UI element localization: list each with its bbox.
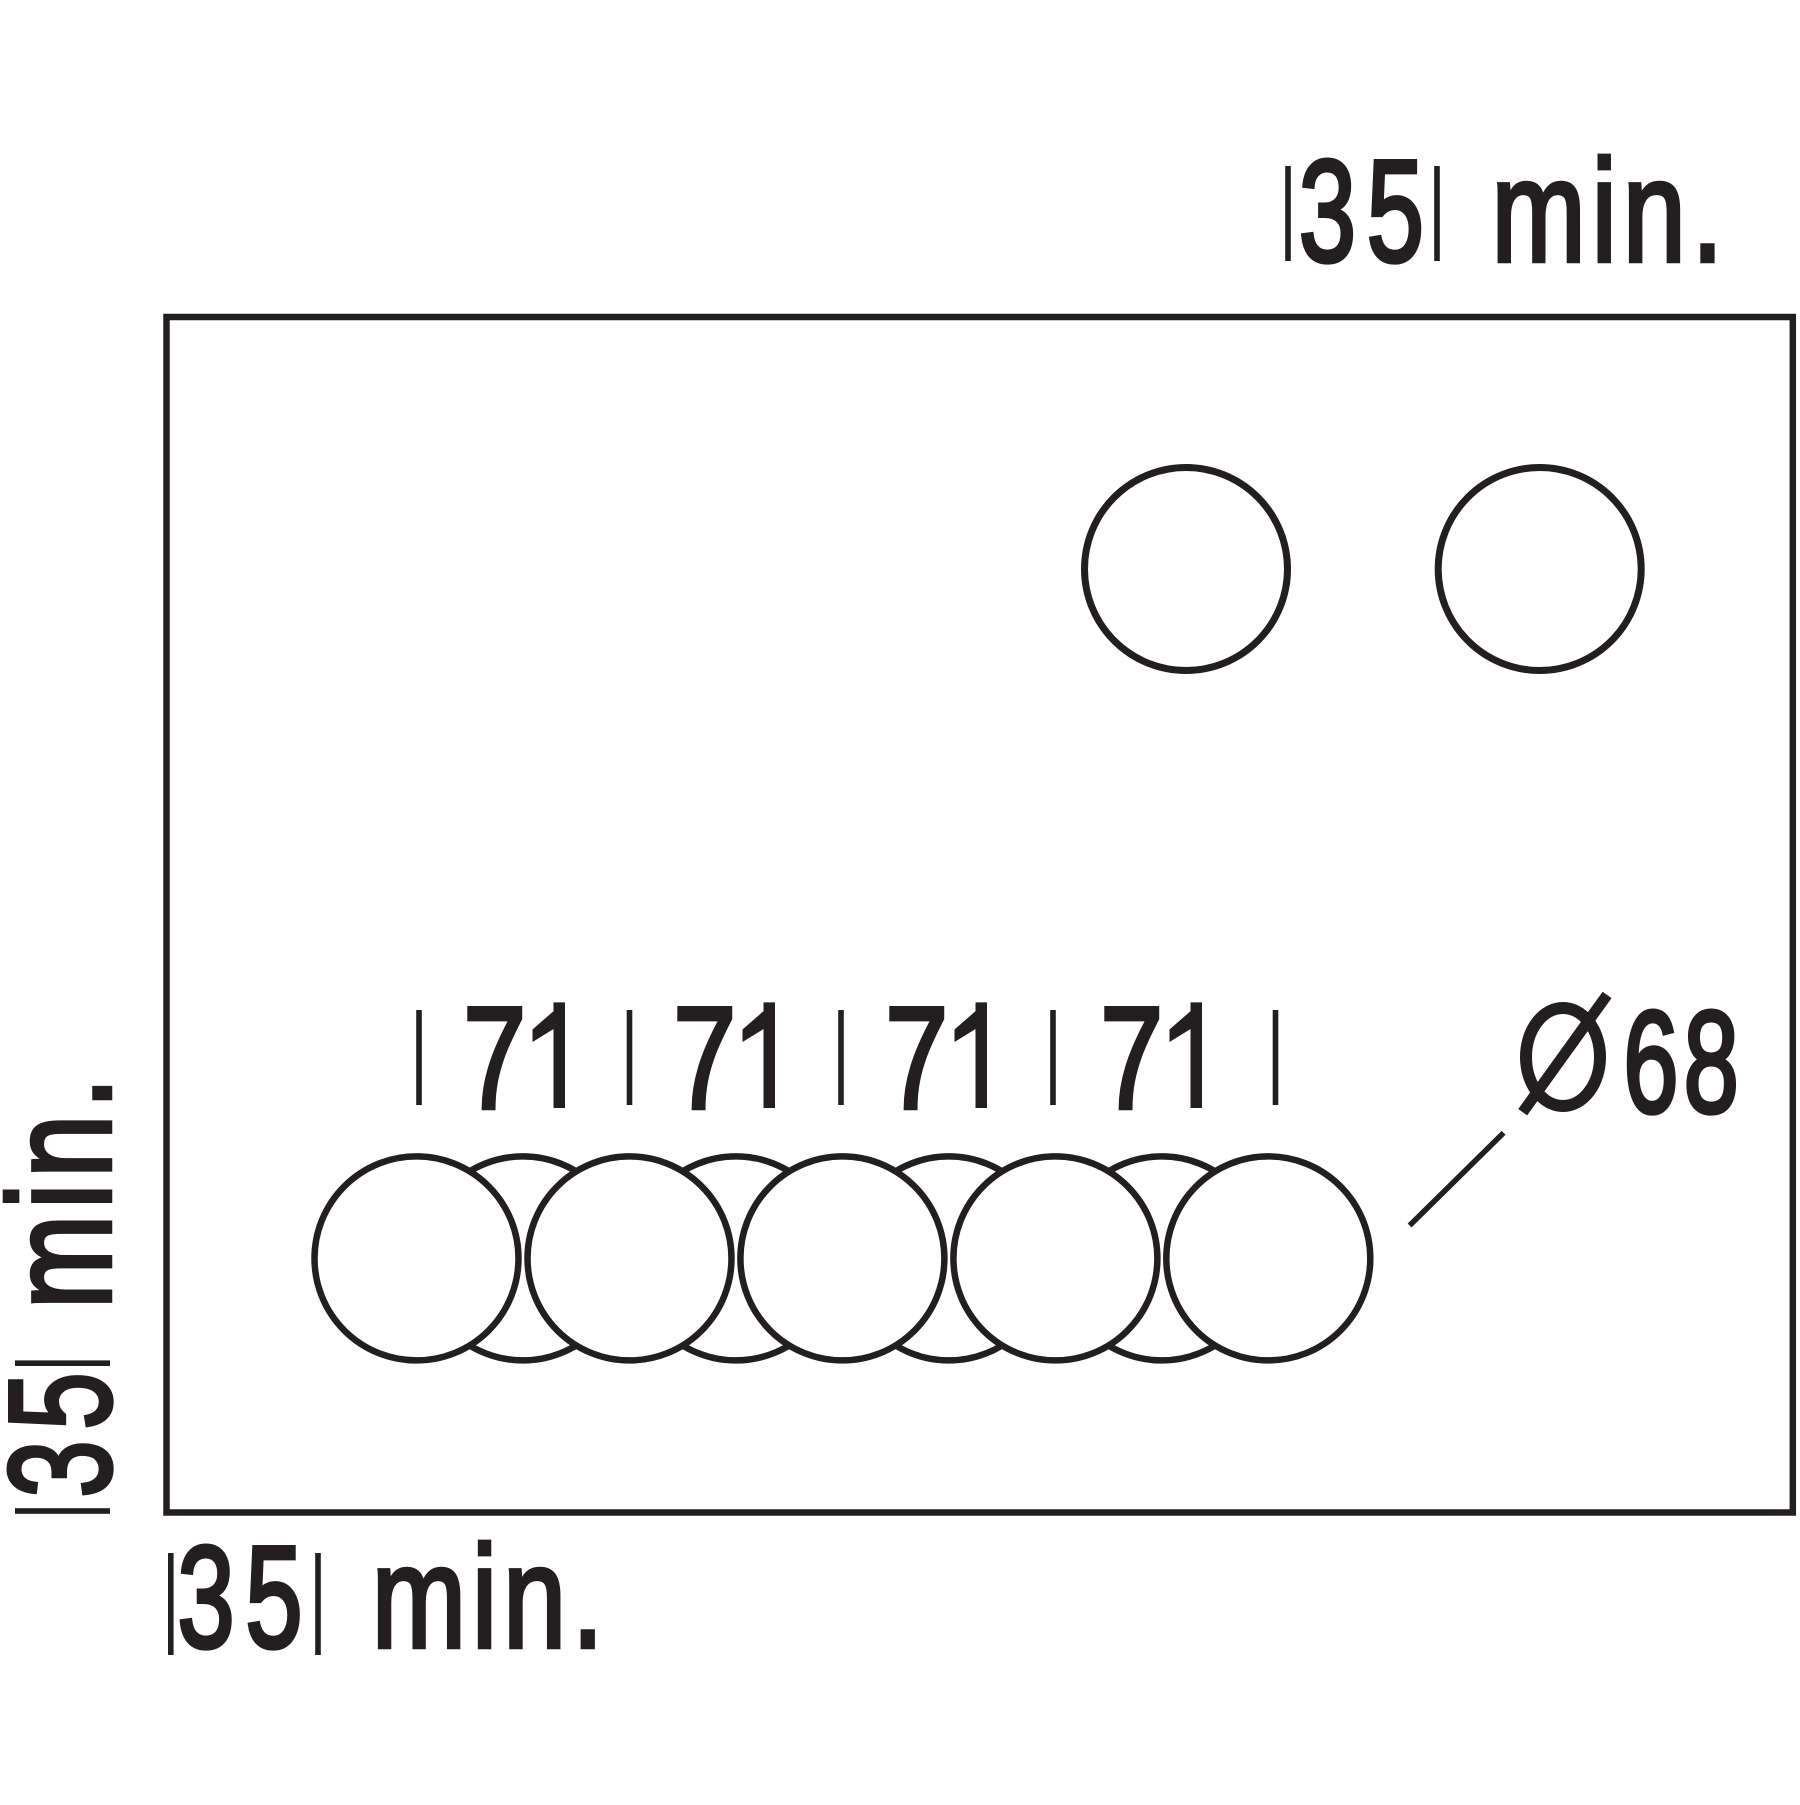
svg-text:min.: min. <box>372 1515 610 1678</box>
svg-text:35: 35 <box>1299 130 1435 293</box>
svg-text:7: 7 <box>673 976 736 1139</box>
svg-text:7: 7 <box>885 976 948 1139</box>
svg-text:min.: min. <box>0 1071 141 1309</box>
svg-text:7: 7 <box>1100 976 1163 1139</box>
svg-text:35: 35 <box>177 1516 313 1679</box>
svg-text:35: 35 <box>0 1362 141 1498</box>
svg-text:7: 7 <box>463 976 526 1139</box>
svg-text:min.: min. <box>1492 129 1730 292</box>
svg-text:68: 68 <box>1623 982 1744 1143</box>
